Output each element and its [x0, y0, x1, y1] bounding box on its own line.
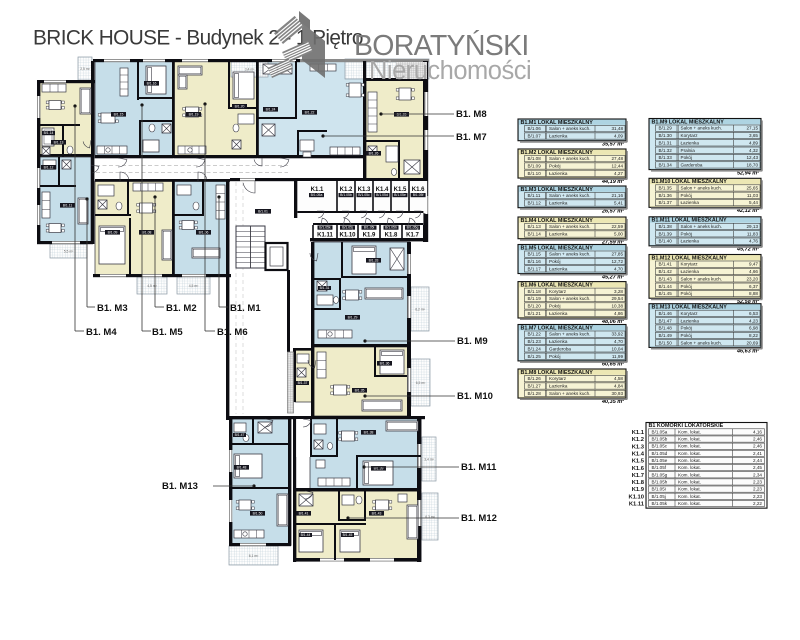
svg-text:30,93: 30,93	[612, 391, 624, 396]
svg-text:B/1.35: B/1.35	[659, 186, 673, 191]
svg-text:B/1.05f: B/1.05f	[652, 465, 667, 470]
svg-text:Korytarz: Korytarz	[681, 133, 699, 138]
svg-text:B/1.14: B/1.14	[44, 131, 54, 135]
svg-text:4,09: 4,09	[614, 134, 623, 139]
svg-text:B/1.14: B/1.14	[528, 232, 542, 237]
svg-text:Łazienka: Łazienka	[681, 200, 700, 205]
svg-text:B/1.05e: B/1.05e	[394, 193, 406, 197]
svg-text:B/1.09: B/1.09	[528, 164, 542, 169]
svg-text:K1.11: K1.11	[317, 233, 333, 239]
svg-text:B/1.10: B/1.10	[528, 171, 542, 176]
svg-text:B/1.05h: B/1.05h	[652, 479, 668, 484]
svg-text:2,46: 2,46	[753, 444, 762, 449]
svg-text:8,22: 8,22	[749, 333, 758, 338]
svg-text:Salon + aneks kuch.: Salon + aneks kuch.	[681, 340, 723, 345]
svg-text:B/1.21: B/1.21	[528, 311, 542, 316]
svg-text:4,89: 4,89	[749, 140, 758, 145]
svg-text:29,13: 29,13	[747, 224, 759, 229]
svg-text:B/1.11: B/1.11	[528, 193, 541, 198]
svg-text:4,70: 4,70	[614, 266, 623, 271]
svg-text:B/1.05g: B/1.05g	[652, 472, 668, 477]
svg-text:B/1.38: B/1.38	[364, 431, 374, 435]
svg-text:B/1.39: B/1.39	[659, 231, 673, 236]
svg-text:4,16: 4,16	[753, 429, 762, 434]
svg-text:B/1.20: B/1.20	[528, 304, 542, 309]
svg-text:4,70: 4,70	[614, 339, 623, 344]
svg-text:Salon + aneks kuch.: Salon + aneks kuch.	[549, 332, 591, 337]
svg-text:B/1.42: B/1.42	[659, 269, 673, 274]
svg-text:10,04: 10,04	[612, 346, 624, 351]
svg-text:Salon + aneks kuch.: Salon + aneks kuch.	[549, 296, 591, 301]
svg-text:B/1.41: B/1.41	[659, 262, 673, 267]
svg-text:3,28: 3,28	[614, 289, 623, 294]
svg-text:B1.M8 LOKAL MIESZKALNY: B1.M8 LOKAL MIESZKALNY	[521, 370, 594, 376]
svg-text:21,16: 21,16	[612, 193, 624, 198]
svg-text:Salon + aneks kuch.: Salon + aneks kuch.	[681, 276, 723, 281]
svg-text:B/1.47: B/1.47	[235, 433, 245, 437]
svg-text:B/1.05f: B/1.05f	[413, 193, 424, 197]
svg-text:2,45: 2,45	[753, 465, 762, 470]
svg-text:B/1.05e: B/1.05e	[652, 458, 668, 463]
svg-text:27,85: 27,85	[612, 252, 624, 257]
svg-text:Kom. lokat.: Kom. lokat.	[678, 465, 701, 470]
svg-text:B1.M11 LOKAL MIESZKALNY: B1.M11 LOKAL MIESZKALNY	[652, 218, 727, 224]
svg-text:K1.6: K1.6	[632, 466, 645, 472]
svg-text:4,86: 4,86	[614, 311, 623, 316]
svg-text:Kom. lokat.: Kom. lokat.	[678, 451, 701, 456]
svg-text:4,58: 4,58	[614, 376, 623, 381]
svg-text:Pokój: Pokój	[681, 231, 693, 236]
svg-text:B/1.08: B/1.08	[528, 156, 542, 161]
svg-text:B/1.12: B/1.12	[528, 201, 542, 206]
svg-text:B/1.05c: B/1.05c	[358, 193, 370, 197]
svg-text:B/1.27: B/1.27	[528, 384, 542, 389]
svg-text:B1. M7: B1. M7	[456, 132, 487, 143]
svg-text:11,03: 11,03	[747, 193, 759, 198]
svg-text:B/1.05d: B/1.05d	[652, 451, 668, 456]
svg-text:B/1.17: B/1.17	[528, 266, 542, 271]
svg-text:4,66: 4,66	[749, 269, 758, 274]
svg-text:6,37: 6,37	[749, 284, 758, 289]
svg-text:29,54: 29,54	[612, 296, 624, 301]
svg-text:Garderoba: Garderoba	[549, 346, 571, 351]
svg-text:Salon + aneks kuch.: Salon + aneks kuch.	[549, 193, 591, 198]
svg-text:B/1.16: B/1.16	[528, 259, 542, 264]
svg-text:4,23: 4,23	[749, 318, 758, 323]
svg-text:Łazienka: Łazienka	[681, 239, 700, 244]
svg-text:31,48: 31,48	[612, 126, 624, 131]
svg-text:3,4 m²: 3,4 m²	[245, 67, 255, 71]
svg-text:K1.4: K1.4	[376, 187, 389, 193]
svg-text:2,34: 2,34	[753, 472, 762, 477]
svg-text:B/1.44: B/1.44	[301, 533, 311, 537]
svg-text:Pralnia: Pralnia	[681, 148, 696, 153]
svg-text:B1.M7 LOKAL MIESZKALNY: B1.M7 LOKAL MIESZKALNY	[521, 325, 594, 331]
svg-text:2,23: 2,23	[753, 479, 762, 484]
svg-text:K1.6: K1.6	[412, 187, 425, 193]
svg-text:B1.M6 LOKAL MIESZKALNY: B1.M6 LOKAL MIESZKALNY	[521, 282, 594, 288]
svg-text:B/1.28: B/1.28	[397, 113, 407, 117]
svg-text:B1 KOMÓRKI LOKATORSKIE: B1 KOMÓRKI LOKATORSKIE	[649, 421, 724, 429]
svg-text:B/1.25: B/1.25	[528, 354, 542, 359]
svg-text:4,5 m²: 4,5 m²	[147, 284, 157, 288]
svg-text:9,47: 9,47	[749, 262, 758, 267]
svg-text:B/1.15: B/1.15	[114, 113, 124, 117]
svg-text:K1.10: K1.10	[339, 233, 356, 239]
svg-text:B1. M11: B1. M11	[461, 462, 497, 473]
svg-text:B/1.48: B/1.48	[659, 326, 673, 331]
svg-text:B/1.26: B/1.26	[528, 376, 542, 381]
svg-text:B/1.23: B/1.23	[528, 339, 542, 344]
svg-text:B/1.07: B/1.07	[528, 134, 542, 139]
svg-text:B/1.05i: B/1.05i	[652, 487, 666, 492]
svg-text:B/1.05d: B/1.05d	[376, 193, 388, 197]
svg-text:B1.M5 LOKAL MIESZKALNY: B1.M5 LOKAL MIESZKALNY	[521, 245, 594, 251]
svg-text:Łazienka: Łazienka	[549, 266, 568, 271]
svg-text:B/1.24: B/1.24	[528, 346, 542, 351]
svg-text:Łazienka: Łazienka	[549, 134, 568, 139]
svg-text:B/1.05j: B/1.05j	[342, 226, 353, 230]
svg-text:B/1.33: B/1.33	[369, 259, 379, 263]
svg-text:Łazienka: Łazienka	[681, 318, 700, 323]
svg-text:Salon + aneks kuch.: Salon + aneks kuch.	[681, 186, 723, 191]
svg-text:B/1.45: B/1.45	[343, 533, 353, 537]
svg-text:K1.3: K1.3	[632, 444, 645, 450]
svg-text:Łazienka: Łazienka	[549, 311, 568, 316]
svg-text:B/1.38: B/1.38	[659, 224, 673, 229]
svg-text:B/1.19: B/1.19	[528, 296, 542, 301]
svg-text:B/1.05g: B/1.05g	[407, 226, 419, 230]
svg-text:Kom. lokat.: Kom. lokat.	[678, 472, 701, 477]
svg-text:B1. M5: B1. M5	[152, 327, 183, 338]
svg-text:K1.9: K1.9	[632, 487, 645, 493]
svg-text:K1.4: K1.4	[632, 451, 645, 457]
svg-text:B1. M2: B1. M2	[166, 303, 197, 314]
svg-text:B1. M6: B1. M6	[217, 327, 248, 338]
svg-text:B/1.16: B/1.16	[147, 82, 157, 86]
svg-text:B/1.49: B/1.49	[659, 333, 673, 338]
svg-text:B/1.26: B/1.26	[369, 152, 379, 156]
svg-text:K1.5: K1.5	[394, 187, 407, 193]
svg-text:B/1.06: B/1.06	[528, 126, 542, 131]
svg-text:B1.M12 LOKAL MIESZKALNY: B1.M12 LOKAL MIESZKALNY	[652, 255, 728, 261]
svg-text:22,59: 22,59	[612, 224, 624, 229]
svg-text:4,27: 4,27	[614, 171, 623, 176]
svg-text:B/1.31: B/1.31	[659, 140, 673, 145]
svg-text:Korytarz: Korytarz	[549, 376, 567, 381]
svg-text:Salon + aneks kuch.: Salon + aneks kuch.	[549, 224, 591, 229]
svg-text:12,44: 12,44	[612, 164, 624, 169]
svg-text:Pokój: Pokój	[681, 193, 693, 198]
svg-text:B/1.43: B/1.43	[659, 276, 673, 281]
svg-text:2,23: 2,23	[753, 494, 762, 499]
svg-text:B/1.19: B/1.19	[189, 113, 199, 117]
svg-text:B/1.22: B/1.22	[528, 332, 542, 337]
svg-text:K1.1: K1.1	[632, 430, 645, 436]
svg-text:Kom. lokat.: Kom. lokat.	[678, 494, 701, 499]
svg-text:B/1.05h: B/1.05h	[385, 226, 397, 230]
svg-text:B/1.06: B/1.06	[199, 231, 209, 235]
svg-text:K1.8: K1.8	[632, 480, 645, 486]
svg-text:Łazienka: Łazienka	[549, 384, 568, 389]
svg-text:12,72: 12,72	[612, 259, 624, 264]
svg-text:B/1.24: B/1.24	[266, 108, 276, 112]
svg-text:27,15: 27,15	[747, 126, 759, 131]
svg-text:B/1.50: B/1.50	[253, 512, 263, 516]
svg-text:B/1.32: B/1.32	[659, 148, 673, 153]
svg-text:B/1.09: B/1.09	[108, 231, 118, 235]
svg-text:B1. M10: B1. M10	[457, 391, 493, 402]
svg-text:Łazienka: Łazienka	[681, 140, 700, 145]
svg-text:B/1.34: B/1.34	[659, 162, 673, 167]
svg-text:Salon + aneks kuch.: Salon + aneks kuch.	[681, 126, 723, 131]
svg-text:2,44: 2,44	[753, 458, 762, 463]
svg-text:Kom. lokat.: Kom. lokat.	[678, 429, 701, 434]
svg-text:Kom. lokat.: Kom. lokat.	[678, 444, 701, 449]
svg-text:Łazienka: Łazienka	[549, 232, 568, 237]
svg-text:B/1.08: B/1.08	[142, 231, 152, 235]
svg-text:25,65: 25,65	[747, 186, 759, 191]
svg-text:Łazienka: Łazienka	[549, 201, 568, 206]
svg-text:K1.5: K1.5	[632, 459, 645, 465]
svg-text:B/1.29: B/1.29	[348, 316, 358, 320]
svg-text:B1.M9 LOKAL MIESZKALNY: B1.M9 LOKAL MIESZKALNY	[652, 119, 725, 125]
svg-text:3,65: 3,65	[749, 133, 758, 138]
svg-text:Pokój: Pokój	[549, 259, 561, 264]
svg-text:Pokój: Pokój	[681, 333, 693, 338]
svg-text:K1.9: K1.9	[363, 233, 376, 239]
svg-text:B/1.15: B/1.15	[528, 252, 542, 257]
svg-text:Pokój: Pokój	[681, 326, 693, 331]
svg-text:B/1.31: B/1.31	[320, 286, 330, 290]
svg-text:B/1.30: B/1.30	[659, 133, 673, 138]
svg-text:B/1.36: B/1.36	[659, 193, 673, 198]
svg-text:B1. M3: B1. M3	[97, 303, 128, 314]
svg-text:5,41: 5,41	[614, 201, 623, 206]
svg-text:B1. M9: B1. M9	[457, 336, 488, 347]
svg-text:K1.10: K1.10	[629, 494, 644, 500]
svg-text:4,76: 4,76	[749, 239, 758, 244]
svg-text:B/1.37: B/1.37	[659, 200, 673, 205]
svg-text:5,5 m²: 5,5 m²	[64, 249, 74, 253]
svg-text:Łazienka: Łazienka	[549, 339, 568, 344]
svg-text:Kom. lokat.: Kom. lokat.	[678, 501, 701, 506]
svg-text:B/1.36: B/1.36	[380, 362, 390, 366]
svg-text:Salon + aneks kuch.: Salon + aneks kuch.	[549, 126, 591, 131]
svg-text:K1.8: K1.8	[385, 233, 398, 239]
svg-text:Pokój: Pokój	[549, 304, 561, 309]
svg-text:B1. M4: B1. M4	[86, 327, 117, 338]
svg-text:Pokój: Pokój	[681, 155, 693, 160]
svg-text:Salon + aneks kuch.: Salon + aneks kuch.	[549, 156, 591, 161]
svg-text:B/1.33: B/1.33	[659, 155, 673, 160]
svg-text:23,20: 23,20	[747, 276, 759, 281]
svg-text:B1. M8: B1. M8	[456, 109, 487, 120]
svg-text:B/1.37: B/1.37	[298, 381, 308, 385]
svg-text:K1.11: K1.11	[629, 502, 645, 508]
svg-text:B/1.28: B/1.28	[528, 391, 542, 396]
svg-text:B1.M1 LOKAL MIESZKALNY: B1.M1 LOKAL MIESZKALNY	[521, 120, 594, 126]
svg-text:B/1.05b: B/1.05b	[652, 437, 668, 442]
svg-text:2,23: 2,23	[753, 487, 762, 492]
svg-text:Salon + aneks kuch.: Salon + aneks kuch.	[549, 391, 591, 396]
svg-text:K1.2: K1.2	[340, 187, 353, 193]
svg-text:2,46: 2,46	[753, 437, 762, 442]
svg-text:6,2 m²: 6,2 m²	[415, 307, 425, 311]
svg-text:Kom. lokat.: Kom. lokat.	[678, 479, 701, 484]
svg-text:Salon + aneks kuch.: Salon + aneks kuch.	[681, 224, 723, 229]
svg-text:B1.M10 LOKAL MIESZKALNY: B1.M10 LOKAL MIESZKALNY	[652, 179, 728, 185]
svg-text:Korytarz: Korytarz	[681, 262, 699, 267]
svg-text:11,99: 11,99	[612, 354, 624, 359]
svg-text:K1.3: K1.3	[358, 187, 371, 193]
svg-text:Garderoba: Garderoba	[681, 162, 703, 167]
svg-text:5,00: 5,00	[614, 232, 623, 237]
svg-text:3,4 m²: 3,4 m²	[424, 457, 434, 461]
svg-text:B/1.43: B/1.43	[372, 512, 382, 516]
svg-text:Nieruchomości: Nieruchomości	[369, 57, 531, 85]
svg-text:Łazienka: Łazienka	[681, 269, 700, 274]
svg-text:2,5 m²: 2,5 m²	[80, 67, 90, 71]
svg-text:K1.7: K1.7	[632, 473, 644, 479]
svg-text:5,44: 5,44	[749, 200, 758, 205]
svg-text:B/1.13: B/1.13	[54, 141, 64, 145]
svg-text:Kom. lokat.: Kom. lokat.	[678, 487, 701, 492]
svg-text:Pokój: Pokój	[681, 284, 693, 289]
svg-text:B/1.41: B/1.41	[299, 512, 309, 516]
svg-text:B/1.44: B/1.44	[659, 284, 673, 289]
svg-text:B/1.05a: B/1.05a	[311, 193, 323, 197]
svg-text:6,5 m²: 6,5 m²	[416, 381, 426, 385]
svg-text:6,98: 6,98	[749, 326, 758, 331]
svg-text:B/1.29: B/1.29	[659, 126, 673, 131]
svg-text:Korytarz: Korytarz	[681, 311, 699, 316]
svg-text:Pokój: Pokój	[549, 354, 561, 359]
svg-text:Salon + aneks kuch.: Salon + aneks kuch.	[549, 252, 591, 257]
svg-text:B1. M13: B1. M13	[162, 481, 198, 492]
svg-text:Łazienka: Łazienka	[549, 171, 568, 176]
svg-text:B1. M1: B1. M1	[230, 303, 261, 314]
svg-text:B/1.47: B/1.47	[659, 318, 673, 323]
svg-text:B1. M12: B1. M12	[461, 513, 497, 524]
svg-text:B/1.48: B/1.48	[237, 466, 247, 470]
svg-text:27,48: 27,48	[612, 156, 624, 161]
svg-text:33,92: 33,92	[612, 332, 624, 337]
svg-text:4,5 m²: 4,5 m²	[189, 284, 199, 288]
svg-text:B/1.01: B/1.01	[258, 210, 268, 214]
svg-text:Kom. lokat.: Kom. lokat.	[678, 458, 701, 463]
svg-text:20,69: 20,69	[747, 340, 759, 345]
svg-text:4,84: 4,84	[614, 384, 623, 389]
svg-text:Kom. lokat.: Kom. lokat.	[678, 437, 701, 442]
svg-text:B/1.13: B/1.13	[528, 224, 542, 229]
svg-text:B/1.22: B/1.22	[305, 111, 315, 115]
svg-text:18,70: 18,70	[747, 162, 759, 167]
svg-text:6,53: 6,53	[749, 311, 758, 316]
svg-text:B1.M4 LOKAL MIESZKALNY: B1.M4 LOKAL MIESZKALNY	[521, 218, 594, 224]
svg-text:B/1.18: B/1.18	[528, 289, 542, 294]
svg-text:B/1.50: B/1.50	[659, 340, 673, 345]
svg-text:B/1.40: B/1.40	[659, 239, 673, 244]
svg-text:B1.M13 LOKAL MIESZKALNY: B1.M13 LOKAL MIESZKALNY	[652, 305, 728, 311]
svg-text:B1.M3 LOKAL MIESZKALNY: B1.M3 LOKAL MIESZKALNY	[521, 187, 594, 193]
svg-text:2,41: 2,41	[753, 451, 762, 456]
svg-text:B/1.05j: B/1.05j	[652, 494, 666, 499]
svg-text:12,43: 12,43	[747, 155, 759, 160]
svg-text:B/1.20: B/1.20	[235, 105, 245, 109]
svg-text:K1.1: K1.1	[311, 187, 324, 193]
svg-text:B/1.05c: B/1.05c	[652, 444, 668, 449]
svg-text:Pokój: Pokój	[681, 291, 693, 296]
svg-text:Korytarz: Korytarz	[549, 289, 567, 294]
svg-text:B/1.05k: B/1.05k	[319, 226, 331, 230]
svg-text:4,32: 4,32	[749, 148, 758, 153]
svg-text:B1.M2 LOKAL MIESZKALNY: B1.M2 LOKAL MIESZKALNY	[521, 150, 594, 156]
svg-text:6,1 m²: 6,1 m²	[249, 554, 259, 558]
svg-text:B/1.05b: B/1.05b	[340, 193, 352, 197]
svg-text:B/1.11: B/1.11	[63, 204, 73, 208]
svg-text:B/1.05k: B/1.05k	[652, 501, 668, 506]
svg-text:2,22: 2,22	[753, 501, 762, 506]
svg-text:B/1.05a: B/1.05a	[652, 429, 668, 434]
svg-text:K1.7: K1.7	[406, 233, 419, 239]
svg-text:10,38: 10,38	[612, 304, 624, 309]
svg-text:11,83: 11,83	[747, 231, 759, 236]
svg-text:B/1.46: B/1.46	[659, 311, 673, 316]
svg-text:B/1.05i: B/1.05i	[364, 226, 375, 230]
svg-text:B/1.35: B/1.35	[355, 389, 365, 393]
svg-text:Pokój: Pokój	[549, 164, 561, 169]
svg-text:B/1.12: B/1.12	[44, 166, 54, 170]
svg-text:K1.2: K1.2	[632, 437, 644, 443]
svg-text:8,88: 8,88	[749, 291, 758, 296]
svg-text:B/1.45: B/1.45	[659, 291, 673, 296]
